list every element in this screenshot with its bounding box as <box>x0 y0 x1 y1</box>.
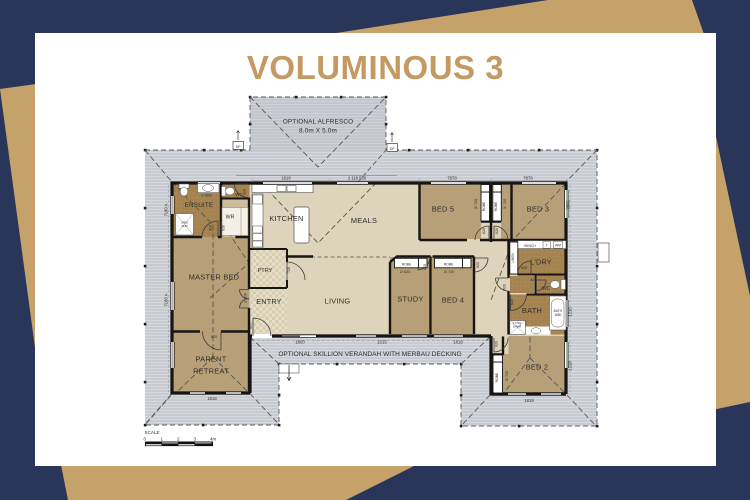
svg-text:3: 3 <box>194 437 197 442</box>
svg-text:2: 2 <box>177 437 180 442</box>
svg-text:KITCHEN: KITCHEN <box>269 214 303 223</box>
svg-text:820: 820 <box>211 335 217 339</box>
svg-text:LINEN: LINEN <box>511 253 515 263</box>
svg-text:620: 620 <box>243 189 247 195</box>
svg-text:T: T <box>546 244 548 248</box>
svg-text:DP: DP <box>236 145 241 149</box>
svg-text:2/ 820: 2/ 820 <box>244 293 248 303</box>
svg-text:4m: 4m <box>210 437 217 442</box>
svg-text:SHR: SHR <box>181 224 188 228</box>
svg-text:620: 620 <box>521 266 527 270</box>
svg-text:PTRY: PTRY <box>258 268 273 274</box>
svg-text:ENSUITE: ENSUITE <box>185 202 214 209</box>
svg-text:620: 620 <box>510 299 514 305</box>
svg-text:1818: 1818 <box>524 398 534 403</box>
svg-text:BED 5: BED 5 <box>432 205 455 214</box>
svg-text:2865: 2865 <box>566 200 571 210</box>
svg-text:620: 620 <box>209 225 213 231</box>
svg-text:1818: 1818 <box>281 176 291 181</box>
svg-text:1: 1 <box>161 437 164 442</box>
svg-text:620: 620 <box>476 262 480 268</box>
svg-text:OPTIONAL ALFRESCO: OPTIONAL ALFRESCO <box>283 119 354 126</box>
svg-text:1216: 1216 <box>568 307 573 317</box>
svg-text:WR: WR <box>226 215 235 221</box>
svg-text:BED 3: BED 3 <box>527 205 550 214</box>
svg-text:BED 4: BED 4 <box>442 296 465 305</box>
svg-text:1818: 1818 <box>453 339 463 344</box>
svg-text:ROBE: ROBE <box>402 263 412 267</box>
svg-text:420: 420 <box>531 278 537 282</box>
svg-text:STUDY: STUDY <box>397 295 423 304</box>
svg-text:7878: 7878 <box>447 176 457 181</box>
svg-text:3/ 720: 3/ 720 <box>474 199 478 210</box>
svg-text:7180 A: 7180 A <box>164 293 169 306</box>
svg-text:OPTIONAL SKILLION VERANDAH WIT: OPTIONAL SKILLION VERANDAH WITH MERBAU D… <box>278 351 461 358</box>
svg-text:ROBE: ROBE <box>495 372 499 382</box>
svg-text:ENTRY: ENTRY <box>256 297 281 306</box>
svg-text:8.0m X 5.0m: 8.0m X 5.0m <box>299 127 337 134</box>
svg-text:1015: 1015 <box>377 339 387 344</box>
svg-text:620: 620 <box>503 284 507 290</box>
svg-text:620: 620 <box>423 264 427 270</box>
svg-text:V 1500: V 1500 <box>201 194 212 198</box>
svg-text:ROBE: ROBE <box>494 201 498 211</box>
svg-text:1800: 1800 <box>295 339 305 344</box>
svg-text:MASTER BED: MASTER BED <box>189 273 240 282</box>
svg-text:ROBE: ROBE <box>482 201 486 211</box>
svg-text:3/ 720: 3/ 720 <box>444 270 455 274</box>
svg-text:2/ 620: 2/ 620 <box>400 270 411 274</box>
svg-text:SHWR: SHWR <box>513 324 522 328</box>
svg-text:L'DRY: L'DRY <box>530 257 551 266</box>
svg-text:BENCH: BENCH <box>524 244 536 248</box>
svg-text:7878: 7878 <box>523 176 533 181</box>
svg-text:WC: WC <box>542 286 551 292</box>
svg-text:630: 630 <box>222 225 226 231</box>
svg-text:820: 820 <box>249 323 253 329</box>
svg-text:620: 620 <box>495 341 499 347</box>
svg-text:BATH: BATH <box>522 306 542 315</box>
svg-text:3/ 720: 3/ 720 <box>503 199 507 210</box>
svg-text:0: 0 <box>144 437 147 442</box>
svg-text:BED 2: BED 2 <box>526 363 549 372</box>
svg-text:3/ 720: 3/ 720 <box>505 371 509 382</box>
svg-text:PARENT: PARENT <box>196 355 227 364</box>
svg-text:2 118 560: 2 118 560 <box>348 176 367 181</box>
svg-text:RETREAT: RETREAT <box>193 367 229 376</box>
svg-text:720: 720 <box>287 267 291 273</box>
svg-text:WM: WM <box>555 244 561 248</box>
svg-text:ROBE: ROBE <box>444 263 454 267</box>
svg-text:7180 A: 7180 A <box>164 203 169 216</box>
svg-text:MEALS: MEALS <box>351 216 377 225</box>
svg-text:1818: 1818 <box>207 396 217 401</box>
svg-text:620: 620 <box>482 228 486 234</box>
svg-text:SCALE: SCALE <box>145 430 160 435</box>
svg-text:DP: DP <box>390 147 395 151</box>
svg-text:1218: 1218 <box>568 361 573 371</box>
svg-text:1680: 1680 <box>554 313 561 317</box>
svg-text:LIVING: LIVING <box>325 297 351 306</box>
svg-text:620: 620 <box>495 228 499 234</box>
